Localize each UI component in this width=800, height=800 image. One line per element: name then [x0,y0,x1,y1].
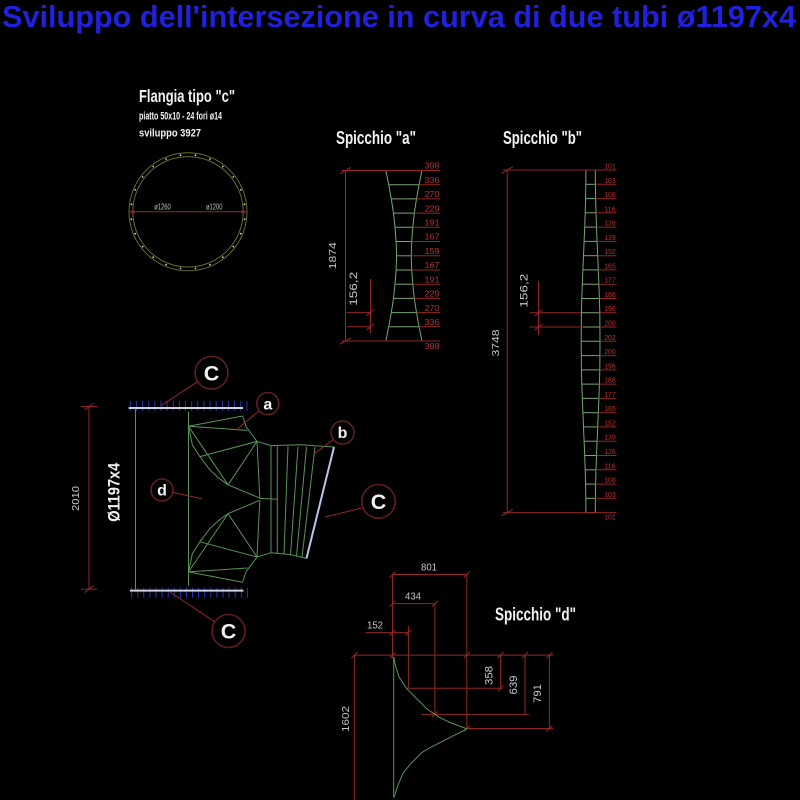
svg-text:791: 791 [532,684,544,703]
svg-text:177: 177 [604,278,616,285]
svg-text:Spicchio "a": Spicchio "a" [336,128,416,148]
svg-text:2010: 2010 [70,486,82,511]
svg-text:196: 196 [604,306,616,313]
svg-text:Sviluppo dell'intersezione in: Sviluppo dell'intersezione in curva di d… [2,0,797,34]
svg-text:C: C [371,490,387,514]
svg-text:229: 229 [425,204,441,213]
svg-text:177: 177 [604,392,616,399]
svg-text:C: C [204,361,220,385]
svg-text:3748: 3748 [490,329,502,356]
svg-text:165: 165 [604,263,616,270]
svg-text:Ø1197x4: Ø1197x4 [106,462,124,522]
svg-text:108: 108 [604,192,616,199]
svg-text:167: 167 [425,233,441,242]
svg-text:270: 270 [425,304,441,313]
svg-text:639: 639 [508,676,520,695]
svg-text:ø1200: ø1200 [206,202,223,211]
svg-text:1874: 1874 [327,242,339,269]
svg-text:152: 152 [604,249,616,256]
svg-text:108: 108 [604,478,616,485]
svg-text:336: 336 [425,176,441,185]
svg-text:398: 398 [425,342,441,351]
svg-text:103: 103 [604,178,616,185]
svg-text:piatto 50x10 - 24 fori ø14: piatto 50x10 - 24 fori ø14 [139,111,222,123]
svg-text:139: 139 [604,235,616,242]
svg-text:sviluppo 3927: sviluppo 3927 [139,128,201,140]
svg-text:a: a [263,396,272,413]
svg-text:200: 200 [604,321,616,328]
svg-text:336: 336 [425,318,441,327]
svg-text:434: 434 [405,590,421,602]
svg-text:188: 188 [604,292,616,299]
svg-text:167: 167 [425,261,441,270]
svg-text:188: 188 [604,378,616,385]
svg-text:191: 191 [425,275,441,284]
svg-text:200: 200 [604,349,616,356]
svg-text:202: 202 [604,335,616,342]
svg-text:156,2: 156,2 [519,274,531,308]
svg-text:Spicchio "b": Spicchio "b" [503,128,582,148]
svg-text:270: 270 [425,190,441,199]
svg-text:152: 152 [367,619,383,631]
svg-text:101: 101 [604,164,616,171]
svg-text:229: 229 [425,290,441,299]
svg-text:126: 126 [604,449,616,456]
svg-text:d: d [157,483,167,500]
svg-text:Flangia tipo "c": Flangia tipo "c" [139,86,235,106]
svg-text:139: 139 [604,435,616,442]
svg-text:101: 101 [604,515,616,522]
svg-text:103: 103 [604,492,616,499]
svg-text:Spicchio "d": Spicchio "d" [495,604,576,624]
svg-text:159: 159 [425,247,441,256]
svg-text:398: 398 [425,162,441,171]
svg-text:126: 126 [604,221,616,228]
svg-text:801: 801 [421,561,437,573]
svg-text:ø1260: ø1260 [154,202,171,211]
svg-text:116: 116 [604,206,616,213]
svg-text:116: 116 [604,463,616,470]
svg-text:156,2: 156,2 [348,272,360,306]
svg-text:1602: 1602 [340,706,352,732]
svg-text:358: 358 [483,666,495,685]
svg-text:191: 191 [425,219,441,228]
svg-text:165: 165 [604,406,616,413]
svg-text:C: C [221,620,237,644]
svg-text:196: 196 [604,363,616,370]
svg-text:b: b [338,425,348,442]
svg-text:152: 152 [604,420,616,427]
